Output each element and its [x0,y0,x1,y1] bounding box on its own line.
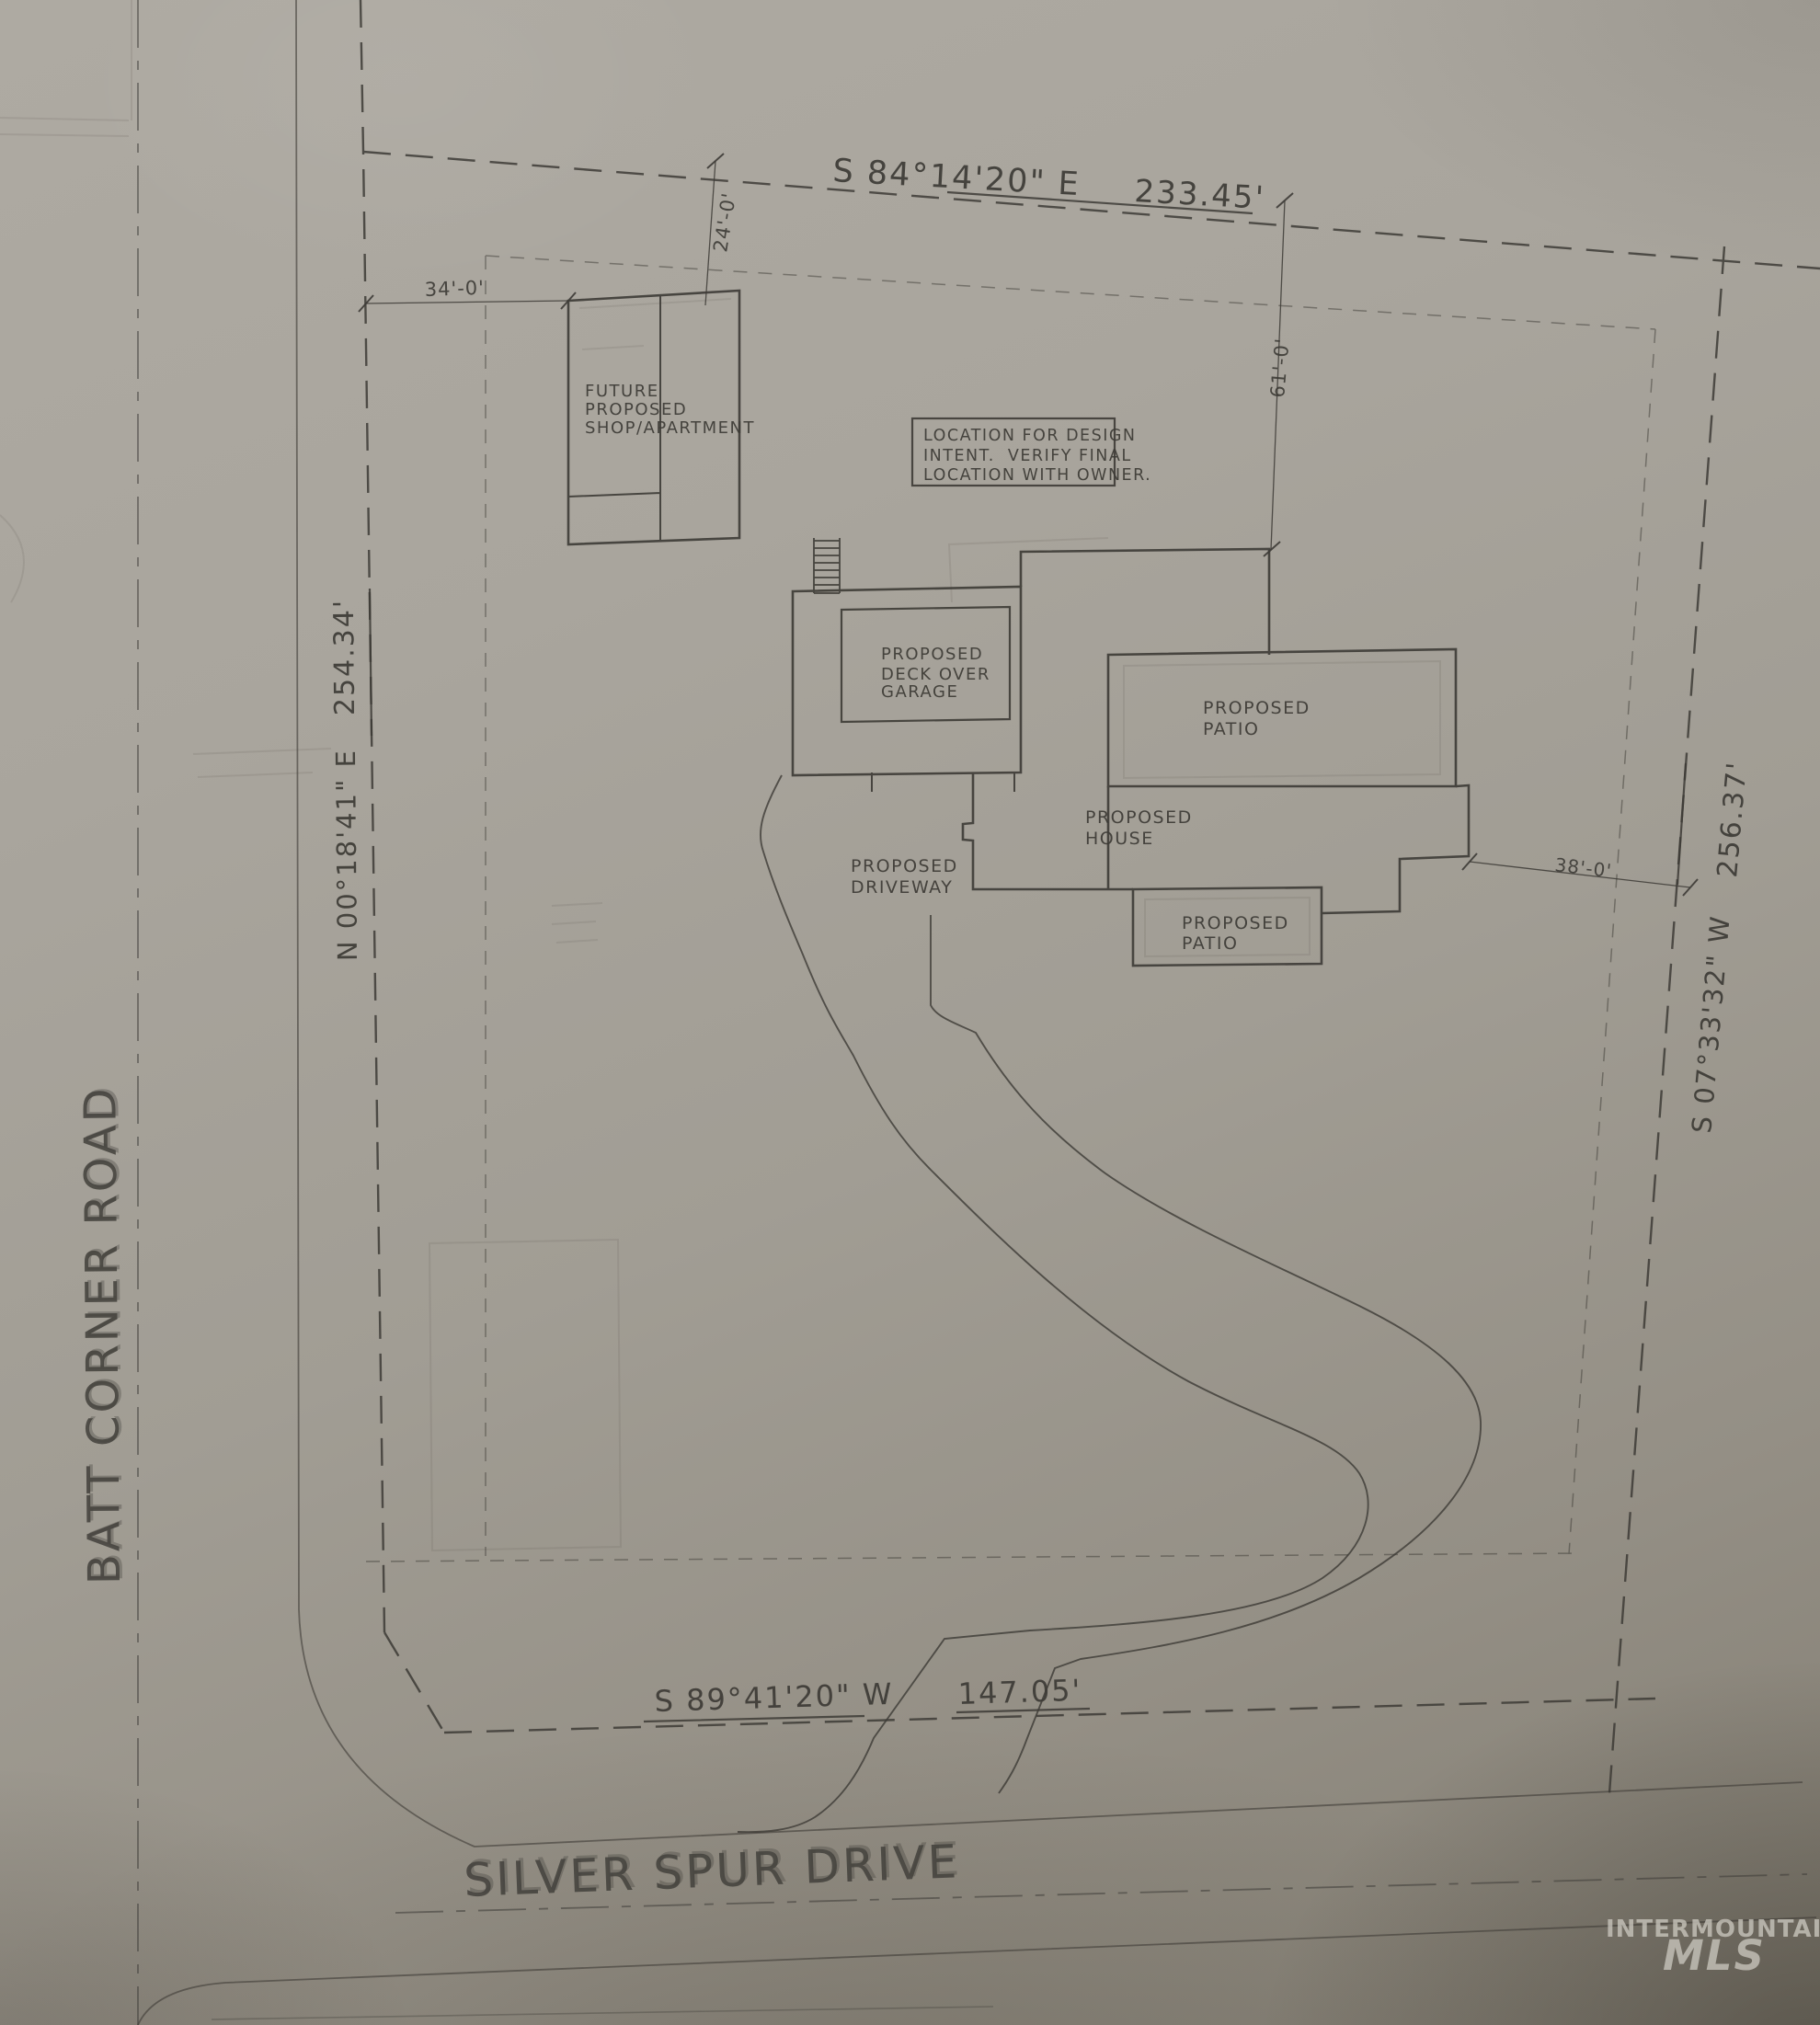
north-boundary-bearing: S 84°14'20" E [831,153,1081,203]
south-boundary-distance: 147.05' [957,1673,1082,1711]
silver-spur-drive-label: SILVER SPUR DRIVE [463,1835,960,1907]
design-note-line2: INTENT. VERIFY FINAL [923,447,1132,465]
deck-label-line3: GARAGE [881,682,958,702]
stairs [814,538,840,593]
dimension-ticks [359,154,1698,896]
silver-spur-south-edge [138,1917,1816,2025]
design-note-line3: LOCATION WITH OWNER. [923,466,1151,485]
watermark-mls: MLS [1663,1931,1766,1980]
boundary-label-underlines [370,192,1686,1722]
north-boundary-distance: 233.45' [1133,173,1265,217]
shop-label-line3: SHOP/APARTMENT [585,418,755,438]
east-boundary-bearing: S 07°33'32" W [1686,914,1736,1135]
patio-south-label-line2: PATIO [1182,933,1238,954]
driveway-label-line2: DRIVEWAY [851,877,953,898]
garage-wall-stubs [872,772,1014,792]
house-outline [1021,549,1269,655]
patio-south-label-line1: PROPOSED [1182,913,1289,933]
dim-34ft: 34'-0' [424,277,485,301]
street-names: BATT CORNER ROAD BATT CORNER ROAD SILVER… [74,1083,963,1907]
batt-corner-road-east-edge [296,0,1803,1847]
driveway-label-line1: PROPOSED [851,856,958,876]
patio-east-label-line2: PATIO [1203,719,1259,739]
lot-boundary-corner-chamfer [384,1632,444,1733]
lot-boundary [361,0,1820,1793]
south-boundary-bearing: S 89°41'20" W [654,1676,894,1719]
design-note-line1: LOCATION FOR DESIGN [923,427,1137,445]
site-plan-drawing: LOCATION FOR DESIGN INTENT. VERIFY FINAL… [0,0,1820,2025]
lot-boundary-west [361,0,384,1632]
dim-24ft: 24'-0' [709,191,740,254]
shop-label-line2: PROPOSED [585,400,687,419]
deck-label-line1: PROPOSED [881,645,983,664]
dim-38ft: 38'-0' [1553,853,1613,882]
shop-label-line1: FUTURE [585,382,659,401]
mls-watermark: INTERMOUNTAIN MLS [1606,1916,1820,1980]
house-east-step [1322,785,1469,913]
house-label-line2: HOUSE [1085,829,1154,849]
dim-61ft: 61'-0' [1266,337,1294,398]
east-boundary-distance: 256.37' [1711,760,1754,879]
house-label-line1: PROPOSED [1085,807,1193,828]
batt-corner-road-label: BATT CORNER ROAD [74,1085,131,1585]
dimension-lines [366,161,1690,887]
driveway-edges [738,775,1481,1832]
driveway-east-edge [931,915,1481,1793]
dimension-labels: 34'-0' 24'-0' 61'-0' 38'-0' [424,191,1613,882]
deck-label-line2: DECK OVER [881,665,990,684]
buildings [568,291,1469,966]
lot-boundary-north [363,152,1820,269]
west-boundary-distance: 254.34' [328,599,361,716]
site-plan-photo: LOCATION FOR DESIGN INTENT. VERIFY FINAL… [0,0,1820,2025]
boundary-labels: S 84°14'20" E 233.45' 254.34' N 00°18'41… [328,153,1754,1719]
road-lines [138,0,1816,2025]
design-note: LOCATION FOR DESIGN INTENT. VERIFY FINAL… [912,418,1151,486]
silver-spur-gutter-line [212,2007,993,2019]
patio-east-label-line1: PROPOSED [1203,698,1311,718]
west-boundary-bearing: N 00°18'41" E [330,749,363,961]
